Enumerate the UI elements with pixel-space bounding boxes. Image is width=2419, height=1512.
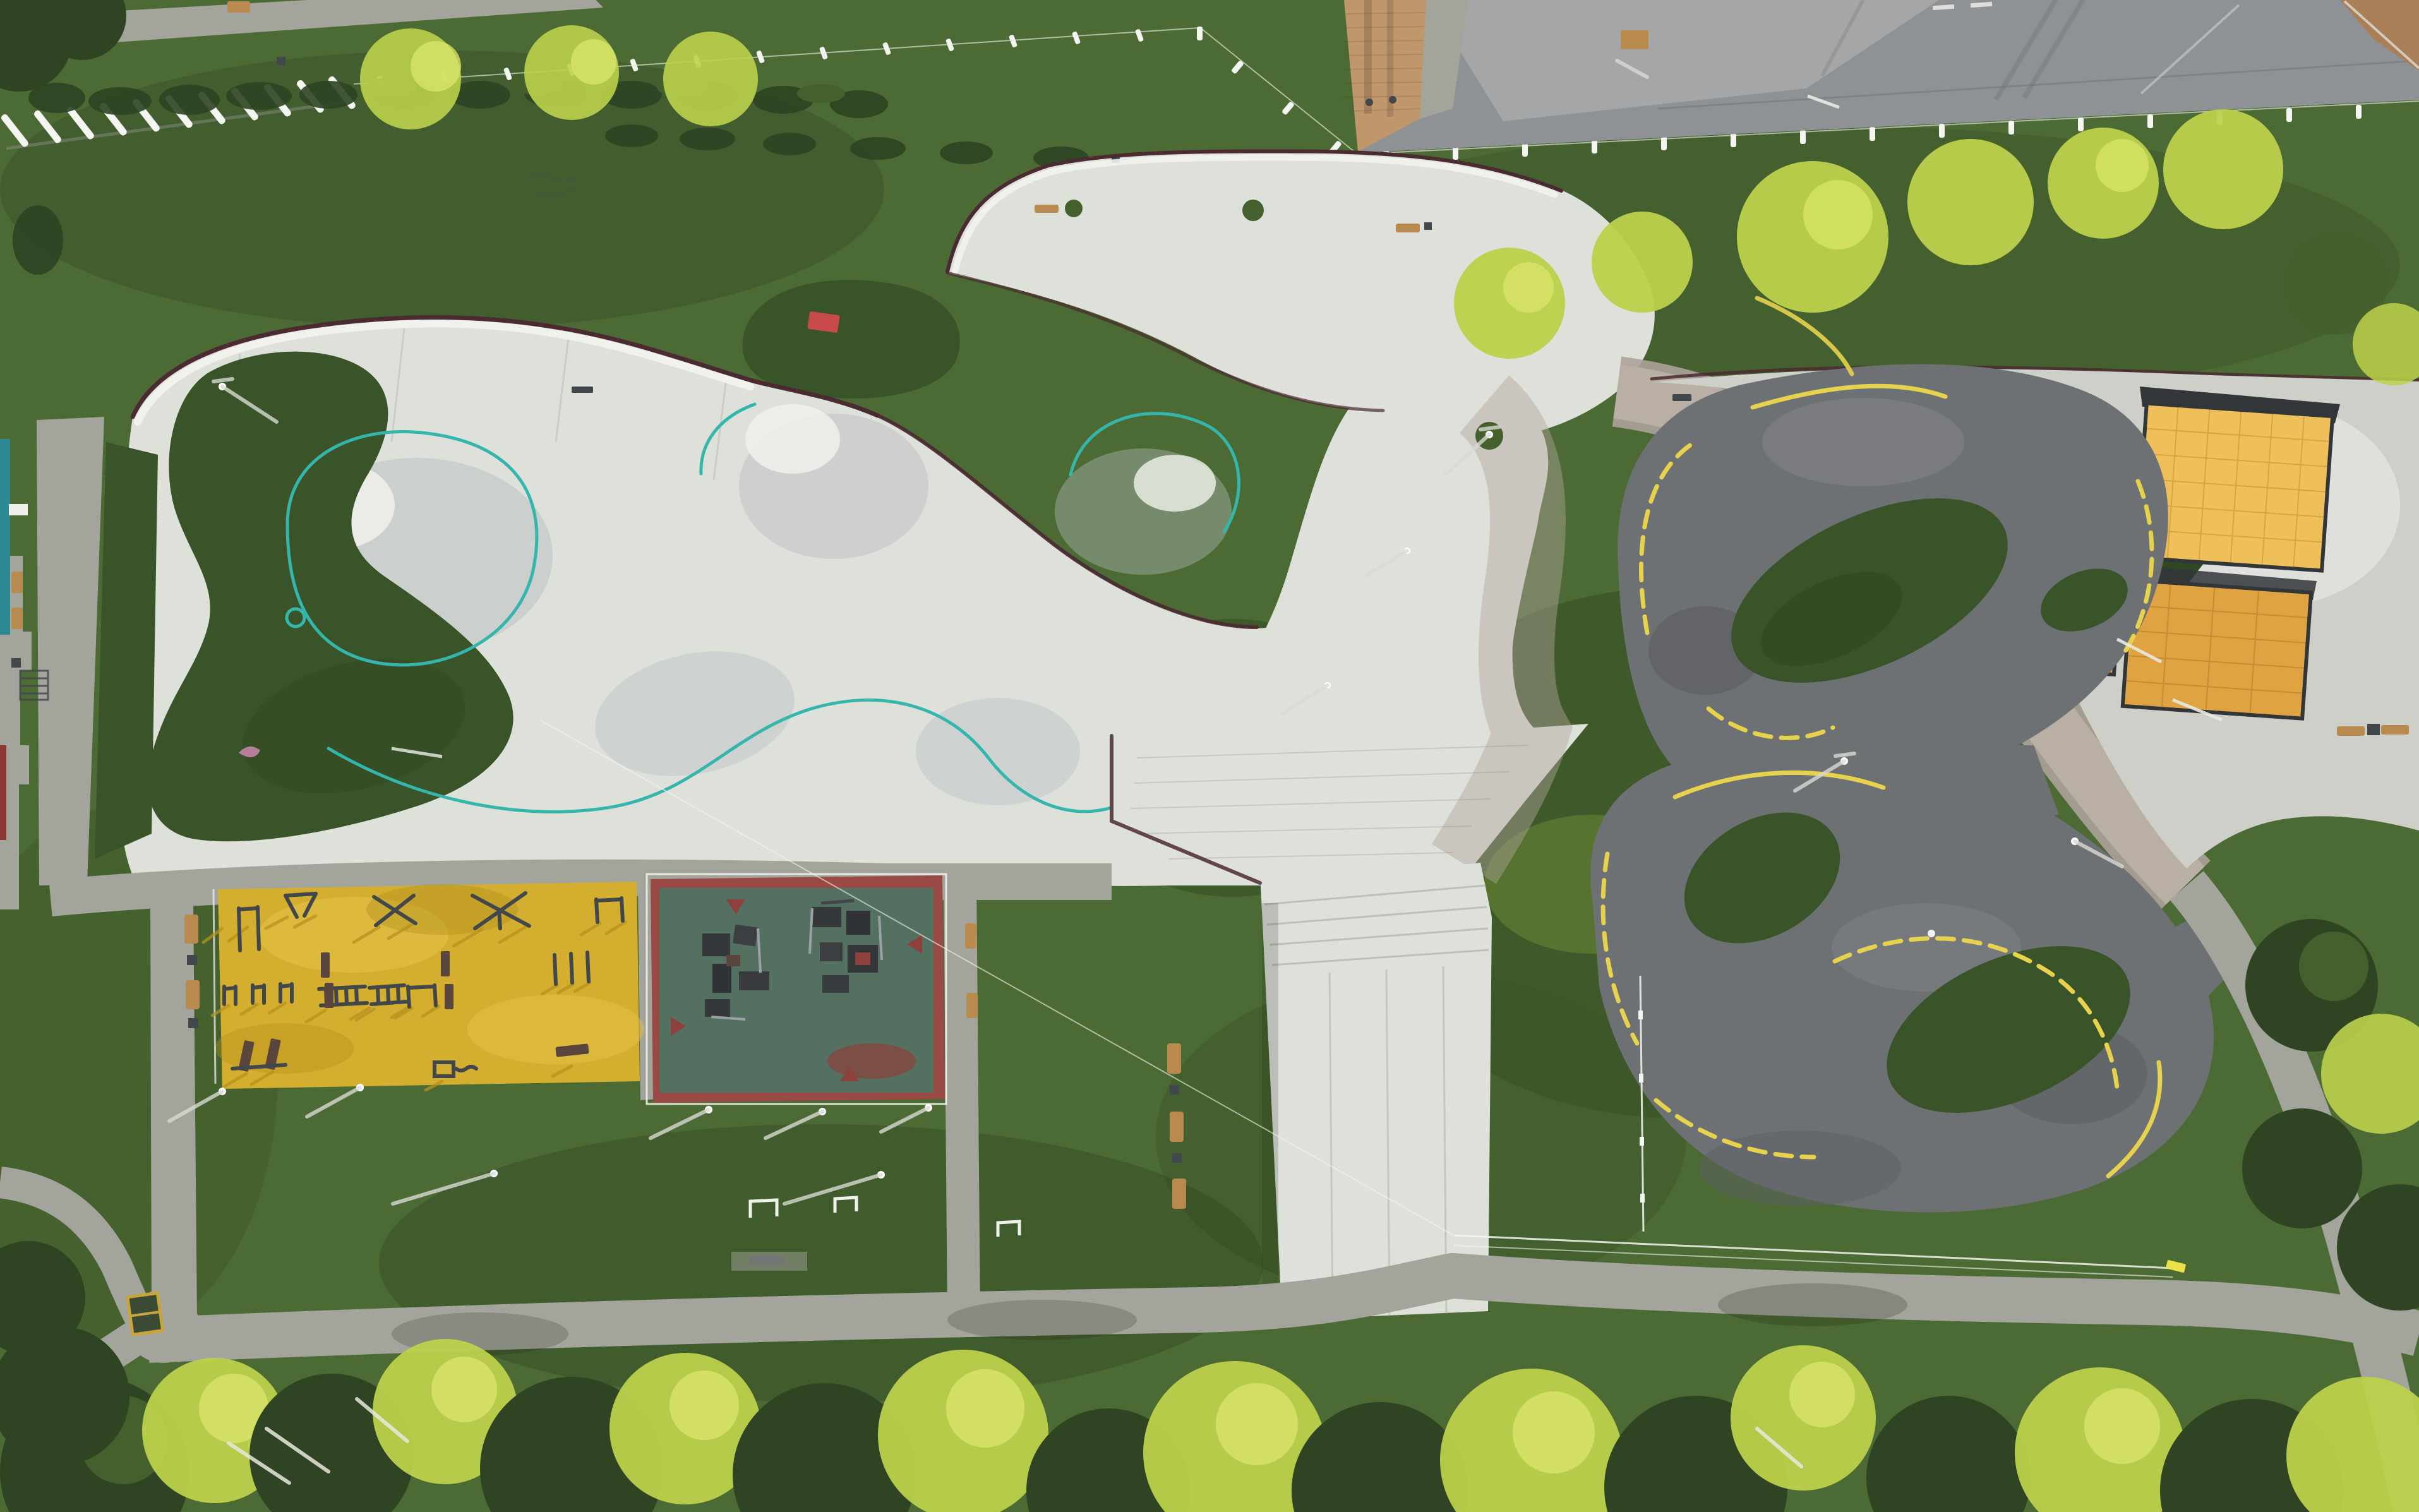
sign-board (9, 504, 28, 515)
wood-pallet (1621, 30, 1648, 49)
bench (1035, 205, 1059, 213)
walk-tree-shadow (947, 1300, 1137, 1340)
parkour-playground (647, 874, 946, 1104)
trash-bin (1172, 1153, 1182, 1163)
grass-shade (379, 1124, 1263, 1402)
fence-post (1661, 136, 1667, 150)
fence-post (2008, 121, 2014, 135)
fence-post (1731, 133, 1736, 147)
bench (227, 1, 250, 13)
fence-post (1522, 143, 1528, 157)
bench-pad (731, 1252, 807, 1271)
track-sunlit (1762, 398, 1964, 486)
fence-post (1870, 127, 1875, 141)
bowl-highlight (745, 404, 840, 474)
fence-post (1800, 130, 1806, 144)
bench (1172, 1179, 1186, 1209)
bench (1167, 1043, 1181, 1074)
stair-shadow (1262, 903, 1278, 1317)
track-dot (1928, 930, 1935, 937)
bench-dark (1672, 394, 1691, 401)
trash-bin (188, 1018, 198, 1028)
bench (965, 923, 976, 949)
park-scene: Top-down aerial view of an urban activit… (0, 0, 2419, 1512)
central-stairs (1261, 863, 1492, 1320)
red-stain (827, 1043, 916, 1079)
red-edge-structure (0, 745, 6, 840)
trash-bin (1424, 222, 1432, 230)
trash-bin (277, 57, 285, 65)
tree-pit (1065, 200, 1083, 217)
street-bench (11, 572, 23, 593)
junction-kiosk (128, 1293, 163, 1335)
shadow-stripe (1364, 0, 1372, 114)
bench (2337, 726, 2365, 736)
fence-post (2286, 108, 2292, 122)
trash-bin (2367, 724, 2380, 735)
fence-post (2147, 114, 2153, 128)
bowl-shade (916, 698, 1080, 805)
gym-light-patch (467, 995, 644, 1064)
bench (966, 993, 978, 1018)
trash-bin (11, 658, 21, 668)
bollard (1389, 96, 1396, 104)
fence-post (2356, 105, 2362, 119)
grind-box (572, 387, 593, 393)
fence-post (1592, 140, 1597, 153)
walk-tree-shadow (1718, 1283, 1907, 1326)
trash-bin (187, 955, 197, 965)
tree-pit (1242, 200, 1264, 221)
fence-post (2078, 117, 2084, 131)
bench (184, 915, 198, 944)
bollard (1366, 99, 1373, 106)
bowl-highlight (1134, 455, 1216, 512)
bench (186, 980, 200, 1009)
trash-bin (1170, 1085, 1179, 1095)
street-bench (11, 608, 23, 629)
teal-edge-structure (0, 439, 10, 635)
bench (2381, 725, 2409, 735)
bench (1170, 1112, 1184, 1142)
outdoor-gym (203, 882, 644, 1090)
aerial-photo: Top-down aerial view of an urban activit… (0, 0, 2419, 1512)
fence-post (1939, 124, 1945, 138)
grass-island-mid (742, 280, 959, 399)
fence-post (1197, 27, 1203, 40)
bench (1396, 224, 1420, 232)
